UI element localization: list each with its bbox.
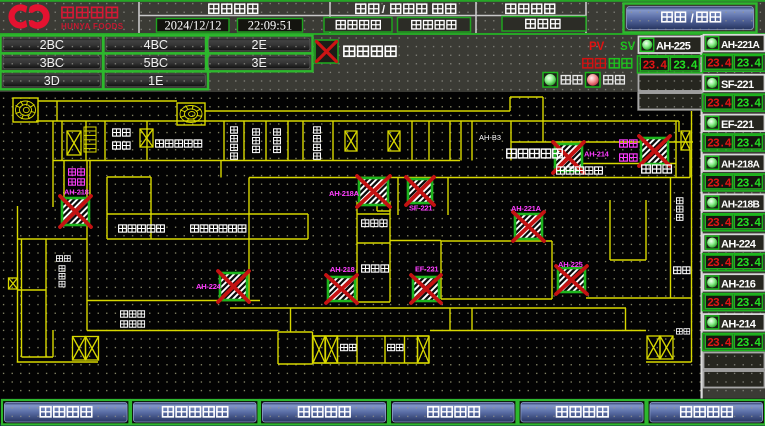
- svg-text:23.4: 23.4: [707, 257, 732, 270]
- svg-text:AH-214: AH-214: [584, 150, 610, 159]
- svg-text:22:09:51: 22:09:51: [248, 19, 292, 33]
- svg-text:23.4: 23.4: [707, 297, 732, 310]
- svg-text:23.4: 23.4: [707, 58, 732, 71]
- svg-text:2BC: 2BC: [40, 38, 64, 52]
- svg-text:23.4: 23.4: [737, 337, 762, 350]
- svg-text:AH-218B: AH-218B: [721, 200, 760, 211]
- svg-text:/: /: [382, 4, 385, 16]
- svg-text:AH-225: AH-225: [656, 41, 691, 53]
- svg-text:5BC: 5BC: [144, 56, 168, 70]
- svg-text:3BC: 3BC: [40, 56, 64, 70]
- svg-text:3E: 3E: [252, 56, 267, 70]
- svg-text:23.4: 23.4: [707, 137, 732, 150]
- svg-text:AH-224: AH-224: [721, 239, 757, 251]
- svg-text:23.4: 23.4: [707, 217, 732, 230]
- svg-text:23.4: 23.4: [737, 177, 762, 190]
- svg-text:AH-218: AH-218: [330, 265, 355, 274]
- svg-text:23.4: 23.4: [737, 137, 762, 150]
- svg-text:2E: 2E: [252, 38, 267, 52]
- svg-text:23.4: 23.4: [707, 98, 732, 111]
- svg-text:AH-221A: AH-221A: [511, 204, 542, 213]
- svg-text:SF-221: SF-221: [409, 204, 432, 213]
- svg-text:AH-224: AH-224: [196, 282, 222, 291]
- svg-text:AH-221A: AH-221A: [721, 40, 761, 51]
- svg-text:23.4: 23.4: [737, 58, 762, 71]
- svg-text:4BC: 4BC: [144, 38, 168, 52]
- svg-text:2024/12/12: 2024/12/12: [165, 19, 222, 33]
- svg-text:AH-216: AH-216: [721, 278, 756, 290]
- svg-text:23.4: 23.4: [737, 217, 762, 230]
- svg-text:AH-214: AH-214: [721, 318, 757, 330]
- svg-text:23.4: 23.4: [673, 59, 698, 72]
- svg-text:AH-B3: AH-B3: [479, 133, 501, 142]
- svg-text:AH-225: AH-225: [558, 260, 583, 269]
- svg-text:23.4: 23.4: [737, 257, 762, 270]
- svg-text:EF-221: EF-221: [721, 119, 754, 131]
- svg-text:23.4: 23.4: [737, 297, 762, 310]
- svg-text:23.4: 23.4: [707, 177, 732, 190]
- svg-text:23.4: 23.4: [737, 98, 762, 111]
- svg-text:23.4: 23.4: [707, 337, 732, 350]
- svg-text:AH-218A: AH-218A: [329, 189, 360, 198]
- svg-text:3D: 3D: [44, 74, 60, 88]
- svg-text:EF-221: EF-221: [415, 265, 438, 274]
- svg-text:SV: SV: [620, 41, 636, 53]
- svg-text:AH-218: AH-218: [64, 188, 89, 197]
- svg-text:AH-218A: AH-218A: [721, 160, 761, 171]
- svg-text:SF-221: SF-221: [721, 79, 754, 91]
- svg-text:PV: PV: [589, 41, 605, 53]
- svg-text:HUNYA FOODS: HUNYA FOODS: [61, 22, 124, 31]
- svg-text:1E: 1E: [148, 74, 163, 88]
- svg-text:23.4: 23.4: [642, 59, 667, 72]
